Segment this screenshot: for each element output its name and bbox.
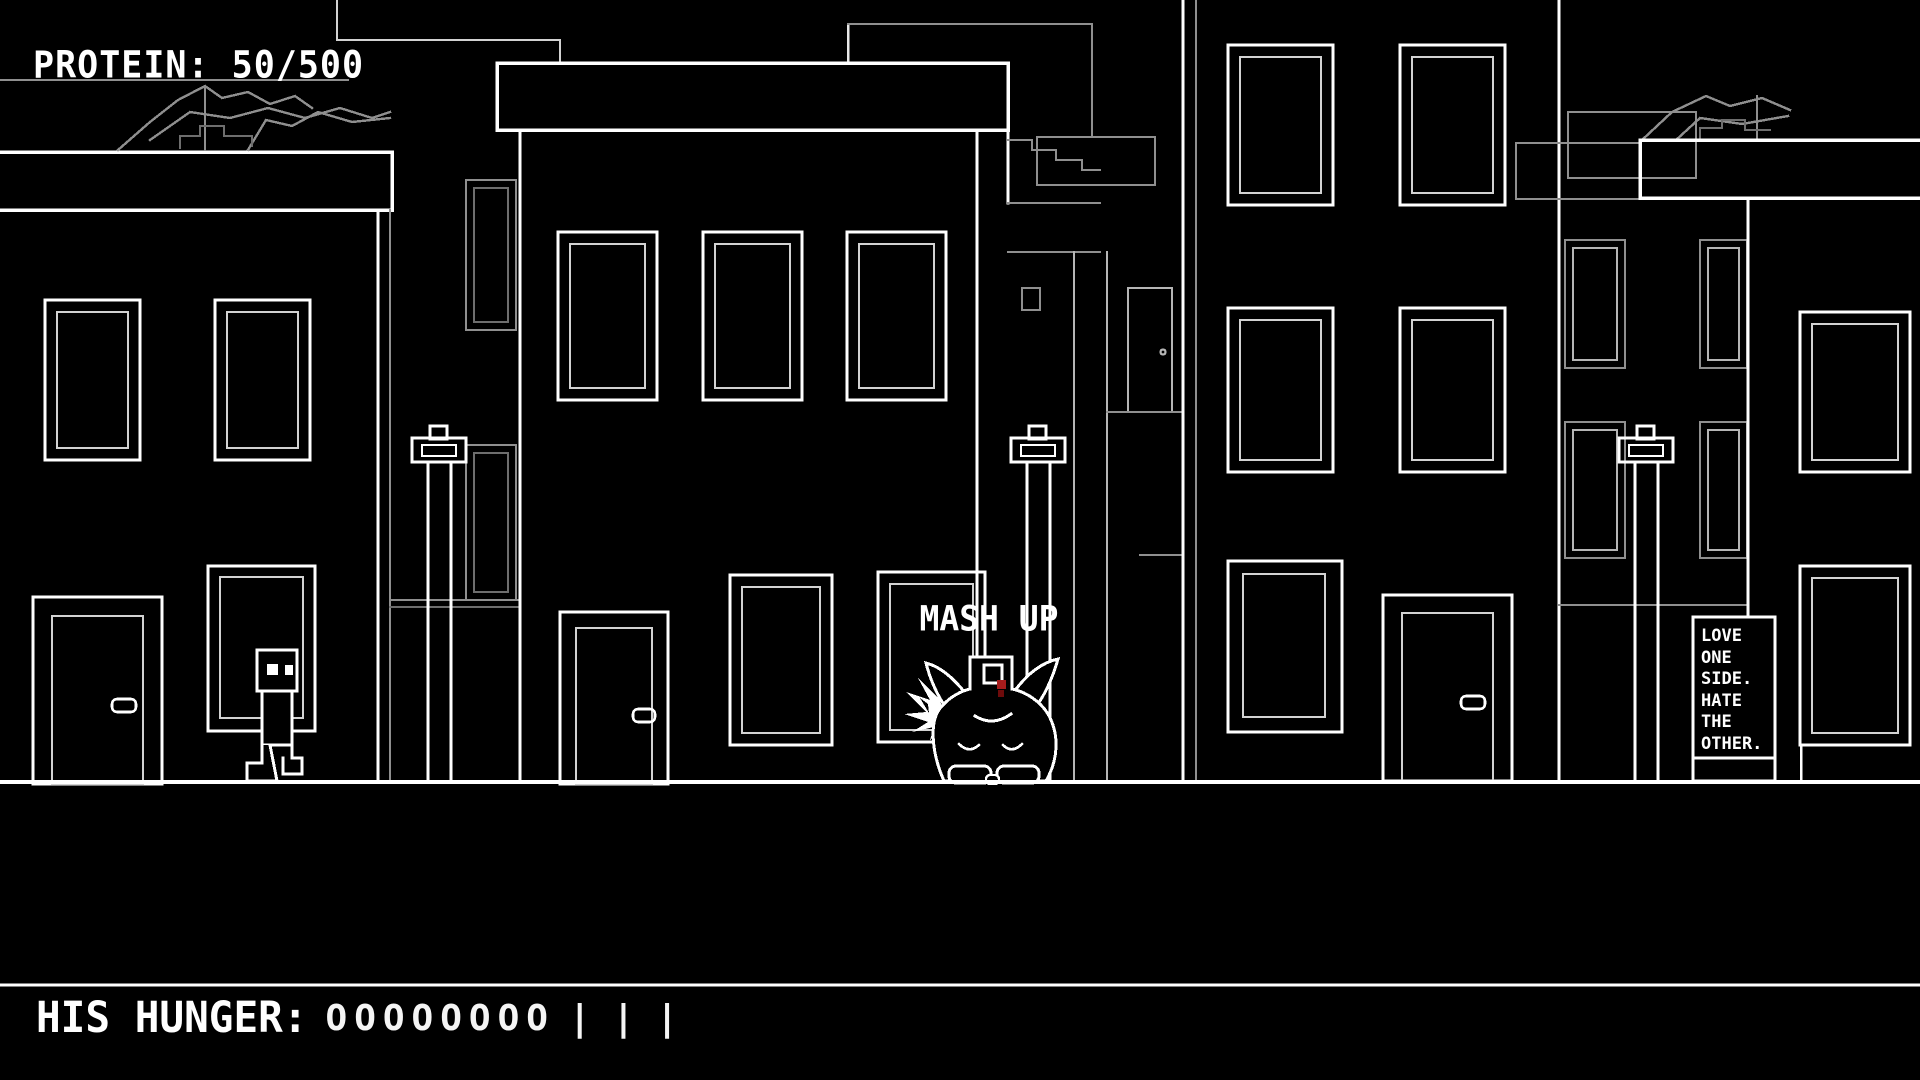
door-handle	[1161, 350, 1166, 355]
player-body	[262, 691, 292, 745]
background-door	[1128, 288, 1172, 412]
door	[1383, 595, 1512, 781]
window-inner-frame	[1412, 320, 1493, 460]
building-d-antennas	[1642, 96, 1790, 140]
door	[33, 597, 162, 784]
building-a-antennas	[118, 86, 390, 150]
window-inner-frame	[859, 244, 934, 388]
lamp-head	[1011, 438, 1065, 462]
window-inner-frame	[227, 312, 298, 448]
door	[560, 612, 668, 784]
window-frame	[1800, 312, 1910, 472]
player-left-leg	[247, 745, 277, 781]
lamppost-1	[412, 426, 466, 781]
monster-name-label: MASH UP	[903, 598, 1075, 639]
window-frame	[730, 575, 832, 745]
billboard-stand	[1693, 758, 1775, 781]
window-frame	[703, 232, 802, 400]
window-frame	[558, 232, 657, 400]
player-right-leg	[283, 745, 302, 774]
window-frame	[1228, 308, 1333, 472]
hunger-meter-filled: OOOOOOOO	[326, 998, 555, 1039]
window-frame	[45, 300, 140, 460]
window-inner-frame	[1412, 57, 1493, 193]
window-frame	[1800, 566, 1910, 745]
window-inner-frame	[57, 312, 128, 448]
lamp-head	[412, 438, 466, 462]
building-d-parapet	[1640, 140, 1920, 198]
street-scene	[0, 0, 1920, 1080]
player-eye-left	[267, 664, 278, 675]
window-inner-frame	[1240, 57, 1321, 193]
door-handle	[112, 699, 136, 712]
monster-eye-red-mark	[997, 680, 1006, 689]
building-c	[1183, 0, 1559, 781]
window-inner-frame	[742, 587, 820, 733]
hunger-meter-empty: |||	[569, 998, 700, 1039]
lamppost-3	[1619, 426, 1673, 781]
billboard-line: HATE	[1701, 691, 1773, 713]
billboard-line: LOVE	[1701, 626, 1773, 648]
hunger-meter: HIS HUNGER: OOOOOOOO |||	[36, 992, 700, 1040]
window-inner-frame	[1812, 324, 1898, 460]
monster-character	[904, 657, 1058, 784]
window-inner-frame	[570, 244, 645, 388]
building-a-parapet	[0, 152, 392, 210]
window-frame	[215, 300, 310, 460]
background-building-gap-ab	[390, 180, 520, 607]
player-character	[247, 650, 302, 781]
window-frame	[1228, 561, 1342, 732]
lamp-head	[1619, 438, 1673, 462]
door-handle	[1461, 696, 1485, 709]
window-inner-frame	[1812, 578, 1898, 733]
window-frame	[1400, 308, 1505, 472]
billboard-line: SIDE.	[1701, 669, 1773, 691]
hunger-label: HIS HUNGER:	[36, 992, 308, 1042]
building-a	[0, 86, 392, 784]
window-frame	[847, 232, 946, 400]
window-frame	[1228, 45, 1333, 205]
street-ground	[0, 782, 1920, 985]
player-eye-right	[285, 665, 293, 675]
window-inner-frame	[715, 244, 790, 388]
billboard-text: LOVE ONE SIDE. HATE THE OTHER.	[1701, 626, 1773, 755]
building-b-roof	[497, 63, 1008, 130]
billboard-line: THE	[1701, 712, 1773, 734]
background-building-gap-cd	[1559, 240, 1748, 605]
billboard-line: ONE	[1701, 648, 1773, 670]
window-frame	[1400, 45, 1505, 205]
background-roof	[1568, 112, 1696, 178]
billboard-line: OTHER.	[1701, 734, 1773, 756]
window-inner-frame	[1243, 574, 1325, 717]
protein-counter: PROTEIN: 50/500	[33, 44, 364, 87]
game-viewport[interactable]: PROTEIN: 50/500 MASH UP HIS HUNGER: OOOO…	[0, 0, 1920, 1080]
window-inner-frame	[1240, 320, 1321, 460]
